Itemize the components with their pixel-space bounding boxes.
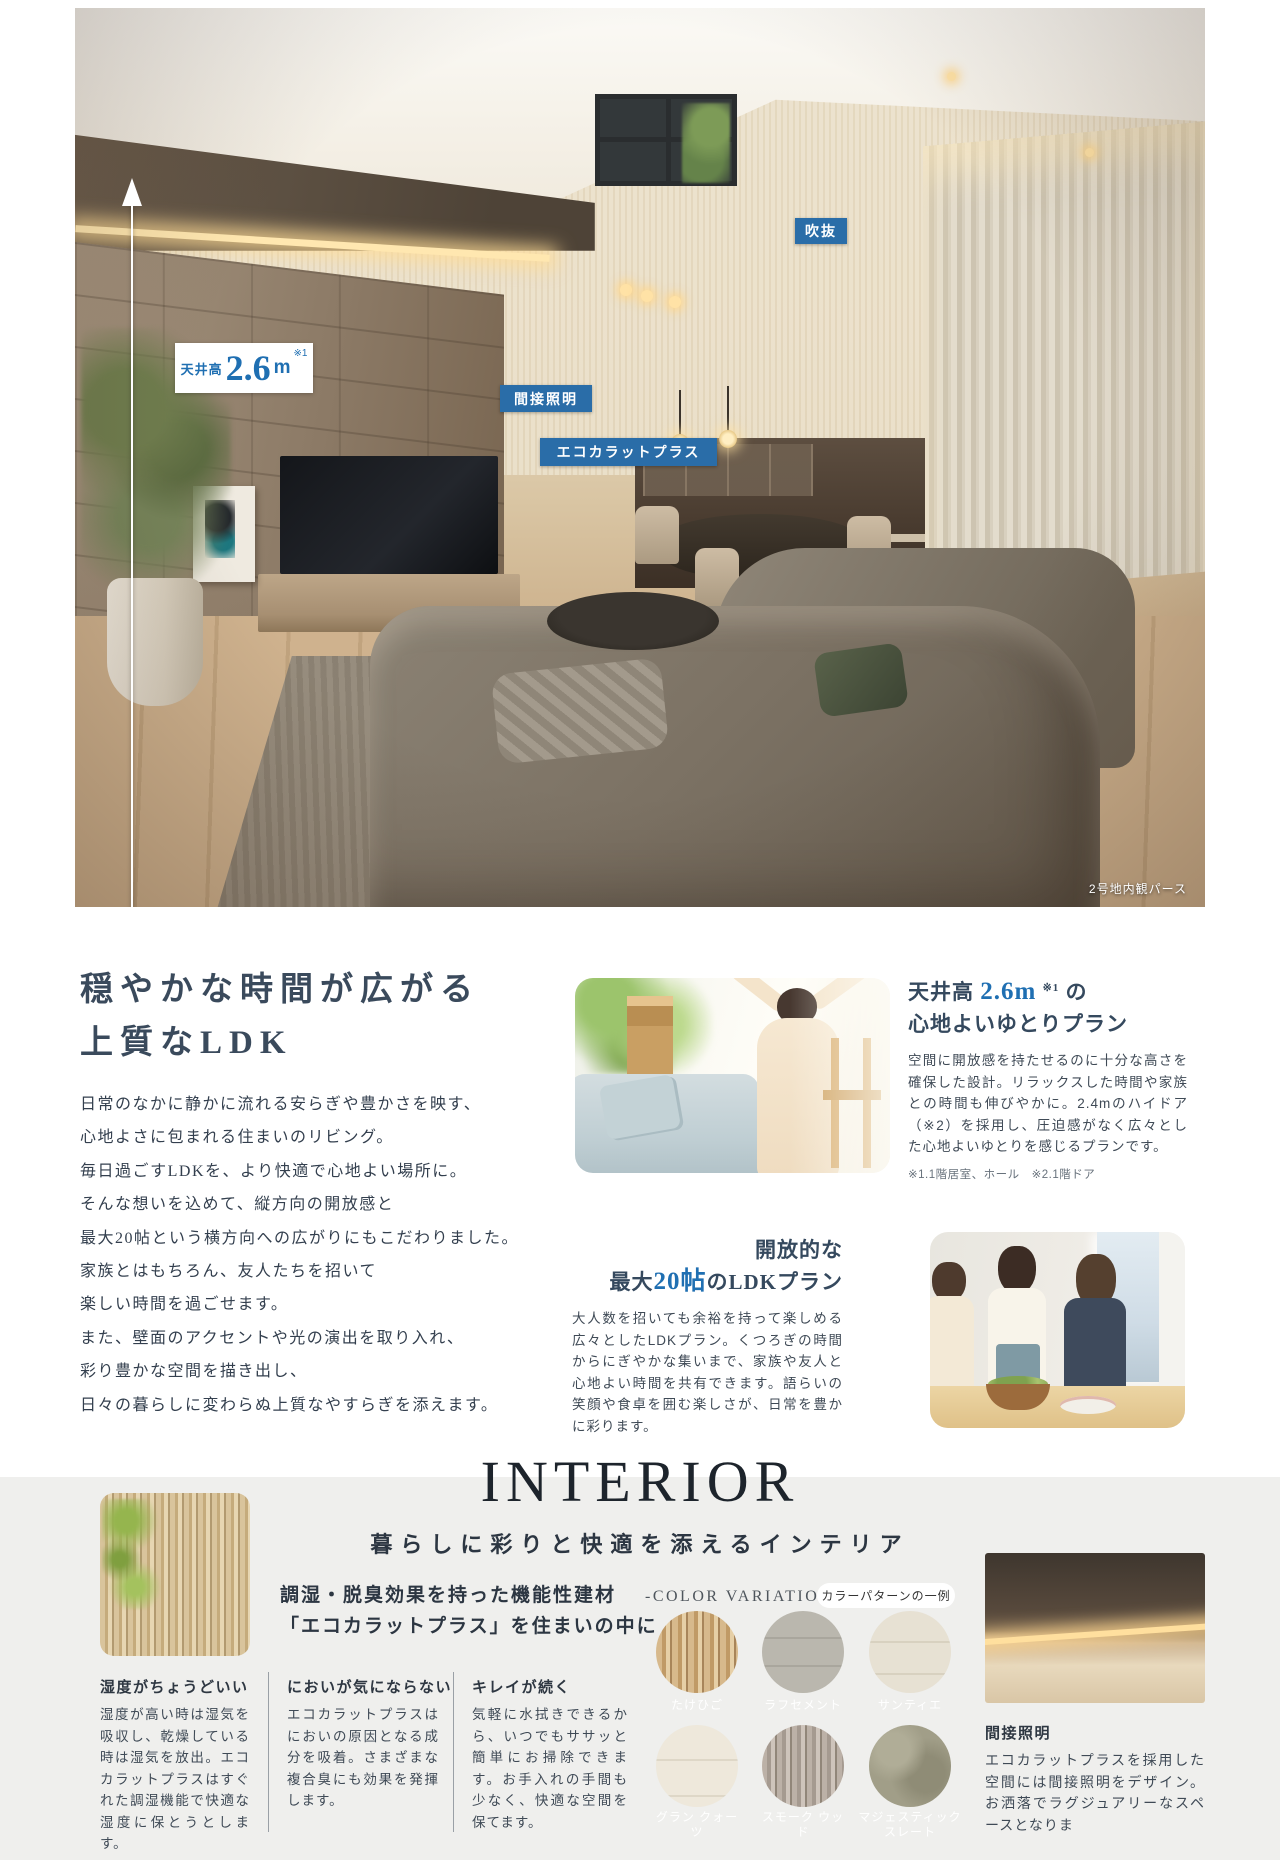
lighting-heading: 間接照明 [985, 1722, 1051, 1743]
feature1-heading: 湿度がちょうどいい [100, 1676, 249, 1697]
feature3-heading: キレイが続く [472, 1676, 571, 1697]
photo-shelf [627, 996, 673, 1074]
ceiling-height-badge: 天井高 2.6 m ※1 [175, 343, 313, 393]
plan1-footnote: ※1.1階居室、ホール ※2.1階ドア [908, 1166, 1188, 1182]
photo-leaves [102, 1499, 162, 1609]
swatch-caption: マジェスティック スレート [858, 1810, 962, 1840]
ceiling-height-note: ※1 [293, 348, 307, 359]
paragraph-line: 日常のなかに静かに流れる安らぎや豊かさを映す、 [80, 1088, 519, 1121]
photo-window-light [790, 978, 890, 1173]
plan2-heading-line1: 開放的な [572, 1234, 843, 1266]
swatch-circle [869, 1725, 951, 1807]
swatch-caption: たけひご [642, 1698, 752, 1713]
paragraph-line: 心地よさに包まれる住まいのリビング。 [80, 1121, 519, 1154]
plan1-heading-value: 2.6m [980, 978, 1036, 1005]
paragraph-line: そんな想いを込めて、縦方向の開放感と [80, 1188, 519, 1221]
plan1-block: 天井高 2.6m ※1 の 心地よいゆとりプラン 空間に開放感を持たせるのに十分… [908, 972, 1188, 1182]
indirect-lighting-photo [985, 1553, 1205, 1703]
swatch-circle [762, 1611, 844, 1693]
hero-photo: 天井高 2.6 m ※1 間接照明 エコカラットプラス 吹抜 2号地内観パース [75, 8, 1205, 907]
section-title-line2: 上質なLDK [80, 1017, 480, 1070]
lighting-body: エコカラットプラスを採用した空間には間接照明をデザイン。お洒落でラグジュアリーな… [985, 1750, 1205, 1836]
paragraph-line: 楽しい時間を過ごせます。 [80, 1288, 519, 1321]
plan2-body: 大人数を招いても余裕を持って楽しめる広々としたLDKプラン。くつろぎの時間からに… [572, 1308, 843, 1438]
feature2-heading: においが気にならない [287, 1676, 452, 1697]
photo-plate [1060, 1396, 1116, 1414]
swatch-caption: スモーク ウッド [758, 1810, 848, 1840]
swatch-caption: サンティエ [855, 1698, 965, 1713]
feature1-body: 湿度が高い時は湿気を吸収し、乾燥している時は湿気を放出。エコカラットプラスはすぐ… [100, 1704, 250, 1855]
interior-lead: 調湿・脱臭効果を持った機能性建材 「エコカラットプラス」を住まいの中に [280, 1580, 658, 1642]
ecocarat-tile-photo [100, 1493, 250, 1656]
feature3-body: 気軽に水拭きできるから、いつでもササッと簡単にお掃除できます。お手入れの手間も少… [472, 1704, 628, 1833]
paragraph-line: 毎日過ごすLDKを、より快適で心地よい場所に。 [80, 1155, 519, 1188]
plan1-heading: 天井高 2.6m ※1 の 心地よいゆとりプラン [908, 972, 1188, 1040]
ceiling-height-unit: m [274, 357, 291, 379]
plan2-block: 開放的な 最大20帖のLDKプラン 大人数を招いても余裕を持って楽しめる広々とし… [572, 1234, 843, 1438]
plan2-photo [930, 1232, 1185, 1428]
feature2-body: エコカラットプラスはにおいの原因となる成分を吸着。さまざまな複合臭にも効果を発揮… [287, 1704, 439, 1812]
height-arrow-up-icon [122, 178, 142, 206]
swatch-circle [656, 1725, 738, 1807]
section-paragraph: 日常のなかに静かに流れる安らぎや豊かさを映す、 心地よさに包まれる住まいのリビン… [80, 1088, 519, 1422]
brochure-page: 天井高 2.6 m ※1 間接照明 エコカラットプラス 吹抜 2号地内観パース … [0, 0, 1280, 1860]
column-divider [453, 1672, 454, 1832]
section-title: 穏やかな時間が広がる 上質なLDK [80, 964, 480, 1070]
plan2-heading-line2: 最大20帖のLDKプラン [572, 1266, 843, 1298]
color-pattern-badge: カラーパターンの一例 [817, 1583, 955, 1608]
paragraph-line: 彩り豊かな空間を描き出し、 [80, 1355, 519, 1388]
ecocarat-badge: エコカラットプラス [540, 438, 717, 466]
paragraph-line: 日々の暮らしに変わらぬ上質なやすらぎを添えます。 [80, 1389, 519, 1422]
paragraph-line: また、壁面のアクセントや光の演出を取り入れ、 [80, 1322, 519, 1355]
photo-table [930, 1386, 1185, 1428]
ceiling-height-value: 2.6 [226, 350, 271, 386]
column-divider [268, 1672, 269, 1832]
swatch-circle [869, 1611, 951, 1693]
paragraph-line: 家族とはもちろん、友人たちを招いて [80, 1255, 519, 1288]
height-arrow-line [131, 204, 133, 907]
swatch-circle [762, 1725, 844, 1807]
swatch-caption: グラン クォーツ [652, 1810, 742, 1840]
photo-light-glow [985, 1623, 1205, 1646]
plan2-heading-value: 20帖 [653, 1268, 706, 1295]
void-badge: 吹抜 [795, 218, 847, 244]
interior-lead-line2: 「エコカラットプラス」を住まいの中に [280, 1611, 658, 1642]
ceiling-height-prefix: 天井高 [181, 359, 223, 378]
plan2-heading: 開放的な 最大20帖のLDKプラン [572, 1234, 843, 1298]
plan1-photo [575, 978, 890, 1173]
plan1-body: 空間に開放感を持たせるのに十分な高さを確保した設計。リラックスした時間や家族との… [908, 1050, 1188, 1158]
swatch-caption: ラフセメント [748, 1698, 858, 1713]
section-title-line1: 穏やかな時間が広がる [80, 964, 480, 1017]
plan1-heading-line2: 心地よいゆとりプラン [908, 1008, 1188, 1040]
hero-caption: 2号地内観パース [1089, 880, 1187, 897]
swatch-circle [656, 1611, 738, 1693]
interior-lead-line1: 調湿・脱臭効果を持った機能性建材 [280, 1580, 658, 1611]
plan1-heading-note: ※1 [1043, 982, 1060, 994]
indirect-lighting-badge: 間接照明 [500, 385, 592, 412]
paragraph-line: 最大20帖という横方向への広がりにもこだわりました。 [80, 1222, 519, 1255]
